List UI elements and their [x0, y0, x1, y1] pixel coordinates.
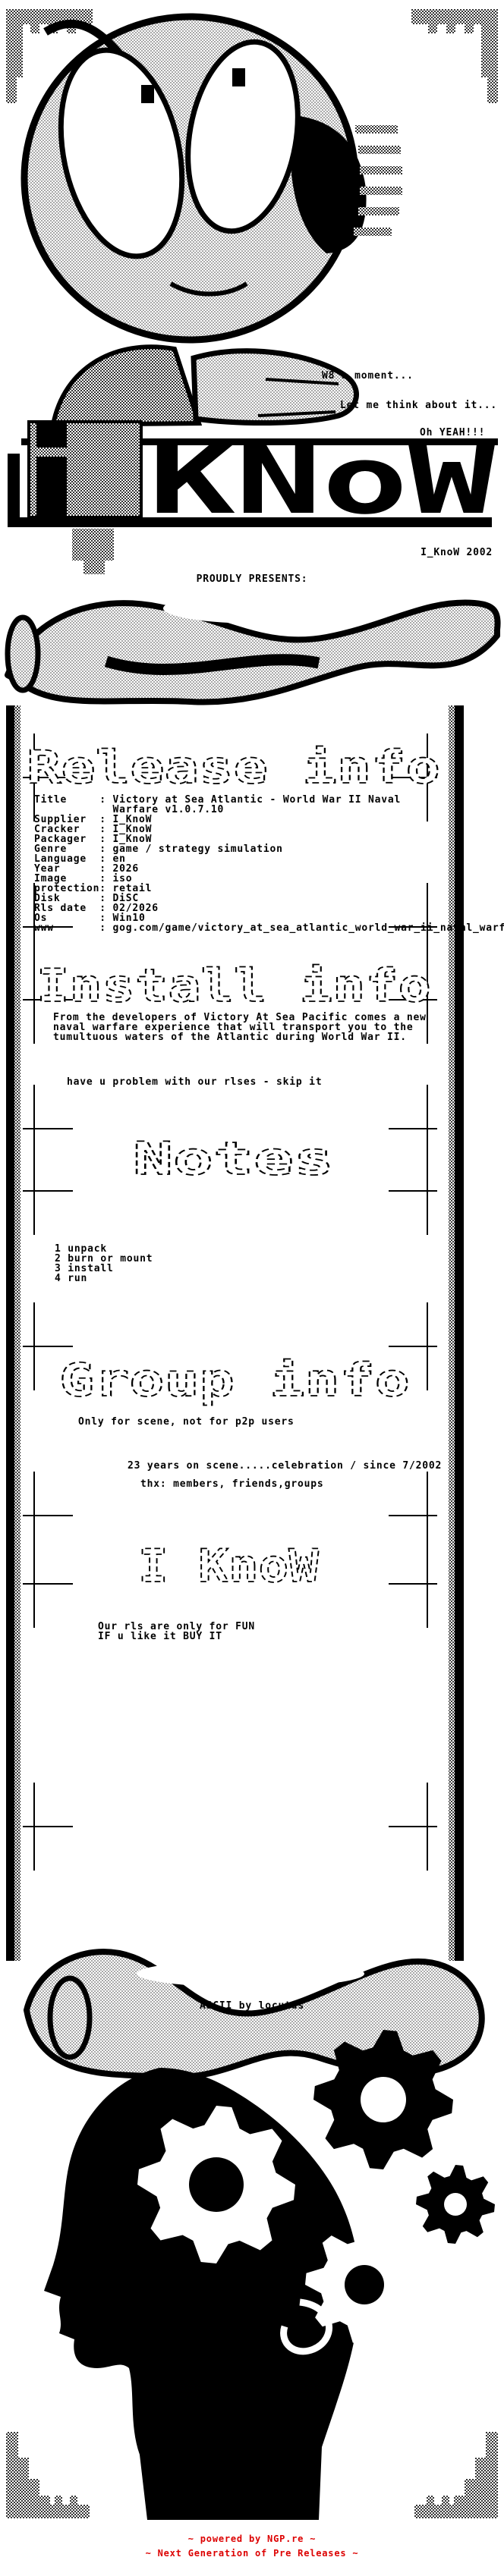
install-info-note: have u problem with our rlses - skip it [67, 1077, 322, 1087]
install-info-body: From the developers of Victory At Sea Pa… [53, 1013, 427, 1042]
nfo-page: KNoW Release info Install info Notes Gro… [0, 0, 504, 2576]
fun-lines: Our rls are only for FUN IF u like it BU… [98, 1622, 255, 1641]
ascii-credit: ASCII by locutus [0, 2001, 504, 2011]
proudly-presents: PROUDLY PRESENTS: [0, 574, 504, 584]
alien-sleeve [53, 347, 199, 425]
corner-bracket-top-right [411, 9, 498, 103]
group-info-line-2: 23 years on scene.....celebration / sinc… [128, 1461, 442, 1471]
alien-artwork [24, 17, 402, 425]
group-info-line-3: thx: members, friends,groups [140, 1479, 324, 1489]
alien-pupil-left [141, 85, 154, 103]
headline-i-know: I KnoW [138, 1540, 320, 1593]
logo-tagline: I_KnoW 2002 [421, 548, 493, 558]
corner-bracket-bottom-left [6, 2432, 90, 2518]
speech-line-1: W8 a moment... [322, 371, 414, 381]
headline-notes: Notes [133, 1132, 334, 1186]
speech-line-2: Let me think about it... [340, 401, 497, 410]
alien-pupil-right [232, 68, 245, 86]
scroll-top-roll [8, 593, 498, 702]
headline-install-info: Install info [36, 960, 431, 1013]
notes-steps: 1 unpack 2 burn or mount 3 install 4 run [55, 1244, 153, 1283]
footer-line-1: ~ powered by NGP.re ~ [0, 2534, 504, 2544]
headline-release-info: Release info [27, 741, 440, 794]
ascii-artwork: KNoW Release info Install info Notes Gro… [0, 0, 504, 2576]
logo-letter-i [36, 422, 67, 448]
footer-line-2: ~ Next Generation of Pre Releases ~ [0, 2549, 504, 2559]
headline-group-info: Group info [59, 1354, 410, 1407]
speech-line-3: Oh YEAH!!! [420, 428, 485, 438]
corner-bracket-bottom-right [414, 2432, 498, 2518]
group-info-line-1: Only for scene, not for p2p users [78, 1417, 295, 1427]
gear-head-artwork [44, 2030, 495, 2520]
release-info-fields: Title : Victory at Sea Atlantic - World … [34, 795, 504, 933]
